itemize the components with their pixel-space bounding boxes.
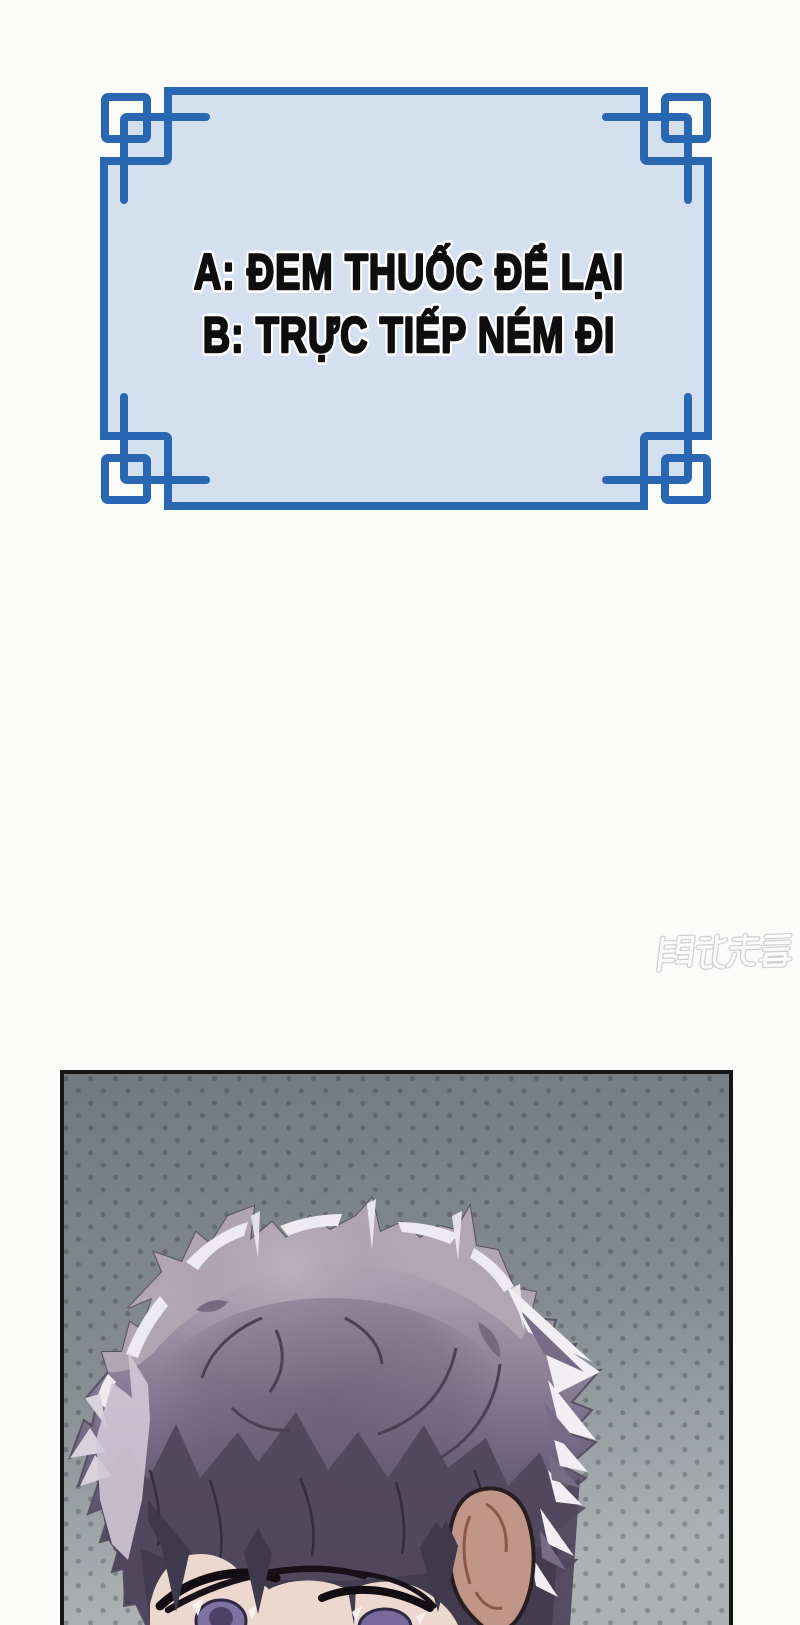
- svg-text:B: TRỰC TIẾP NÉM ĐI: B: TRỰC TIẾP NÉM ĐI: [203, 307, 615, 363]
- svg-text:A: ĐEM THUỐC ĐỂ LẠI: A: ĐEM THUỐC ĐỂ LẠI: [194, 243, 624, 300]
